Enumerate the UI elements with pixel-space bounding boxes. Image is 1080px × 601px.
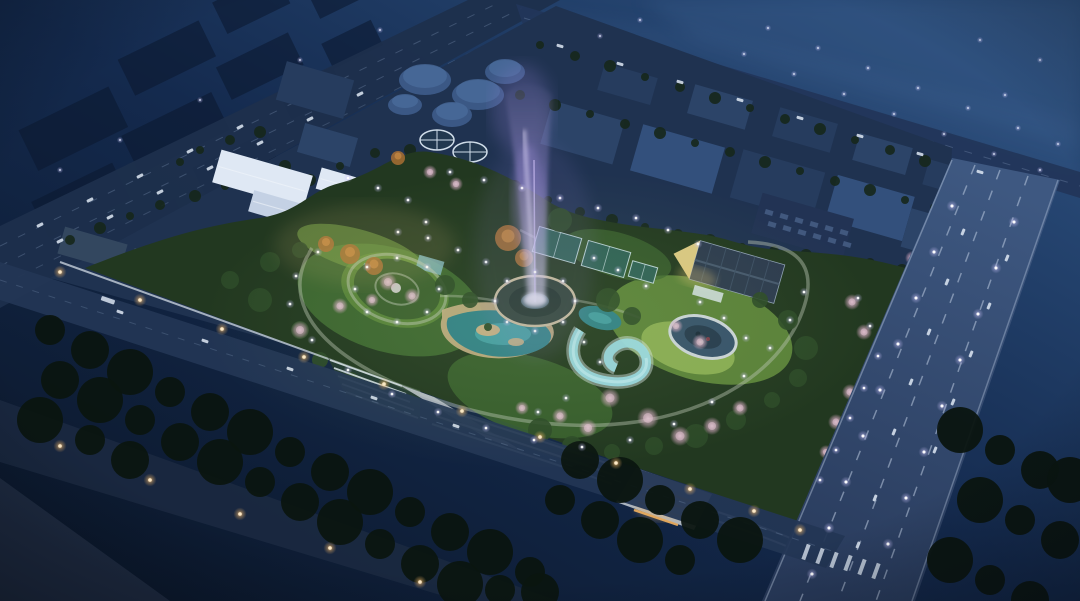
vignette: [0, 0, 1080, 601]
rendering-canvas: Nighttime aerial architectural rendering…: [0, 0, 1080, 601]
scene: Nighttime aerial architectural rendering…: [0, 0, 1080, 601]
